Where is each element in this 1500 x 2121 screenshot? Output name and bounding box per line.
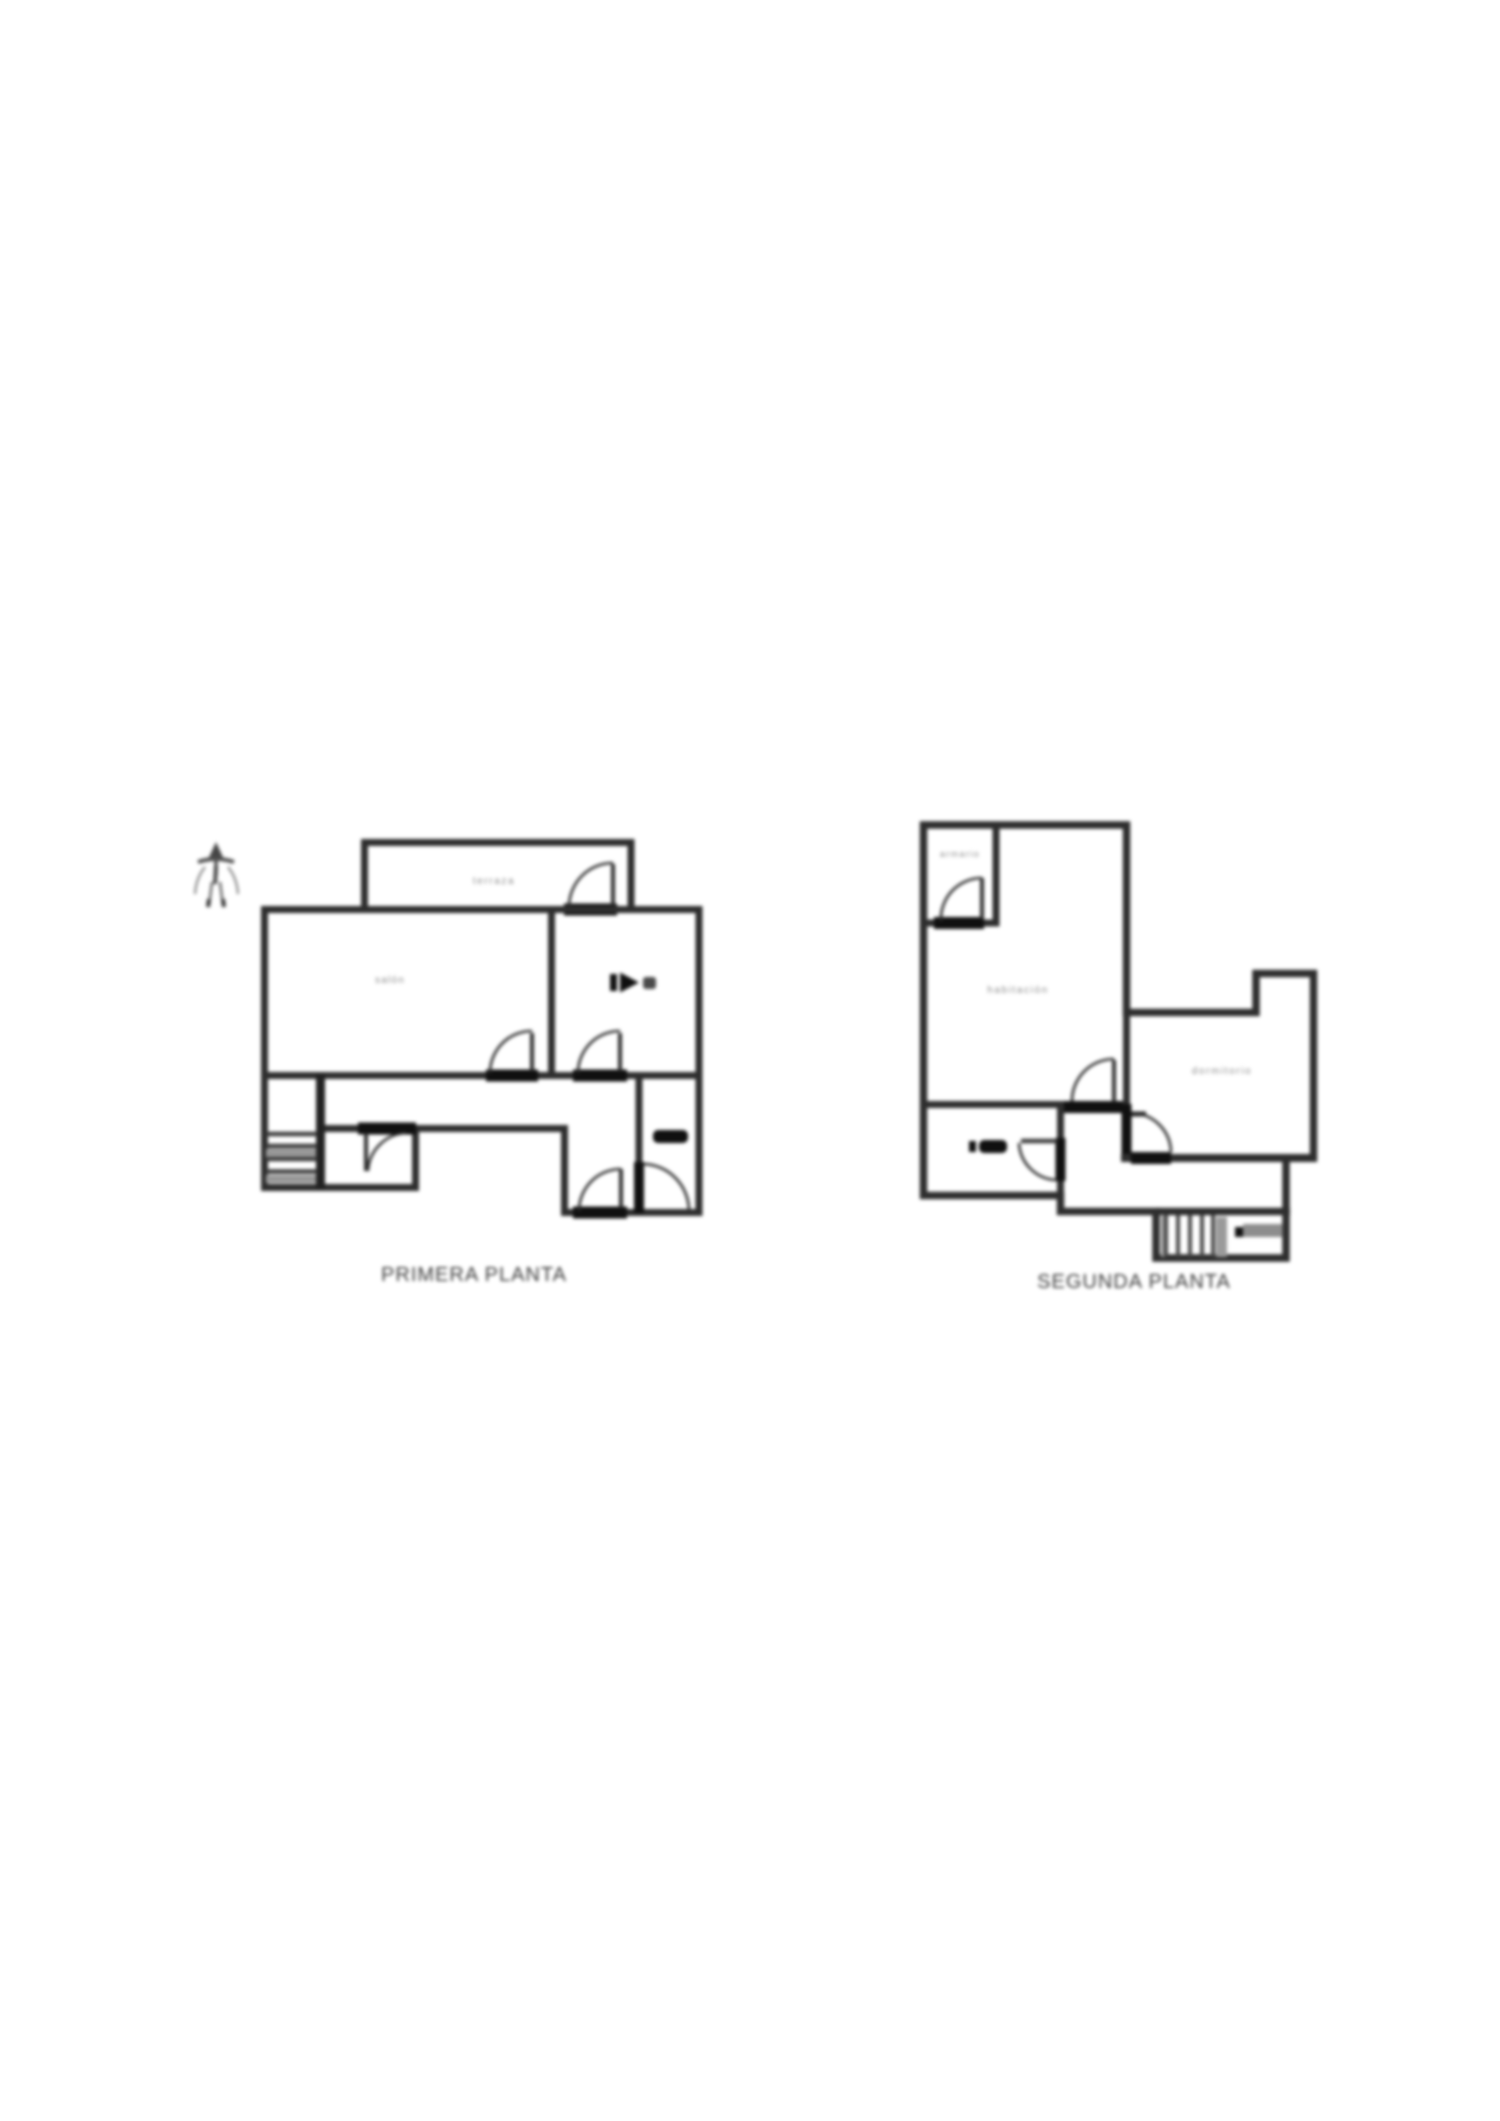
svg-text:PRIMERA PLANTA: PRIMERA PLANTA (381, 1264, 567, 1286)
svg-text:dormitorio: dormitorio (1192, 1066, 1252, 1077)
svg-text:habitación: habitación (987, 985, 1049, 996)
svg-text:SEGUNDA PLANTA: SEGUNDA PLANTA (1037, 1271, 1231, 1293)
svg-text:armario: armario (940, 849, 980, 859)
svg-text:salón: salón (375, 975, 405, 986)
svg-text:terraza: terraza (473, 876, 515, 887)
